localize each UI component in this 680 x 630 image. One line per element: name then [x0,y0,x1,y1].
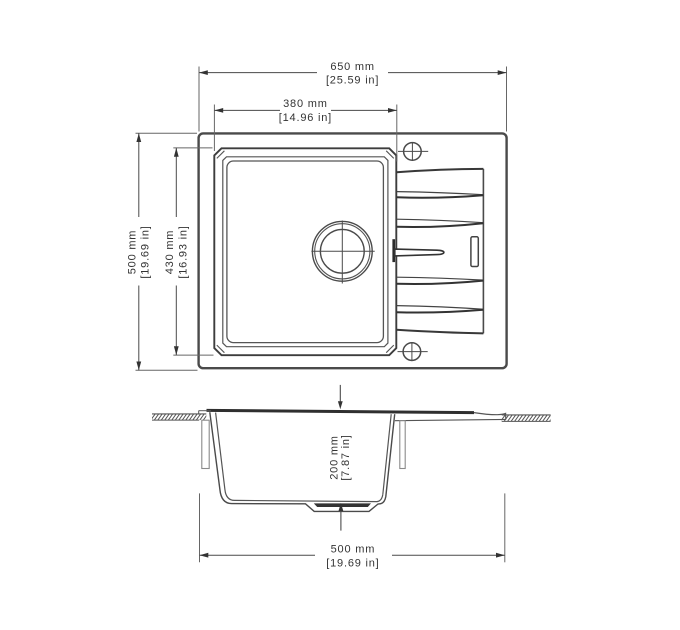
svg-text:500 mm: 500 mm [331,543,376,555]
svg-text:[16.93 in]: [16.93 in] [178,225,190,278]
svg-text:650 mm: 650 mm [330,61,375,73]
svg-text:380 mm: 380 mm [283,98,328,110]
svg-text:[7.87 in]: [7.87 in] [340,434,352,480]
svg-text:[19.69 in]: [19.69 in] [326,557,379,569]
svg-text:500 mm: 500 mm [126,230,138,275]
svg-text:[14.96 in]: [14.96 in] [279,112,332,124]
svg-text:430 mm: 430 mm [164,230,176,275]
svg-text:[25.59 in]: [25.59 in] [326,75,379,87]
svg-text:200 mm: 200 mm [328,435,340,480]
svg-text:[19.69 in]: [19.69 in] [140,225,152,278]
